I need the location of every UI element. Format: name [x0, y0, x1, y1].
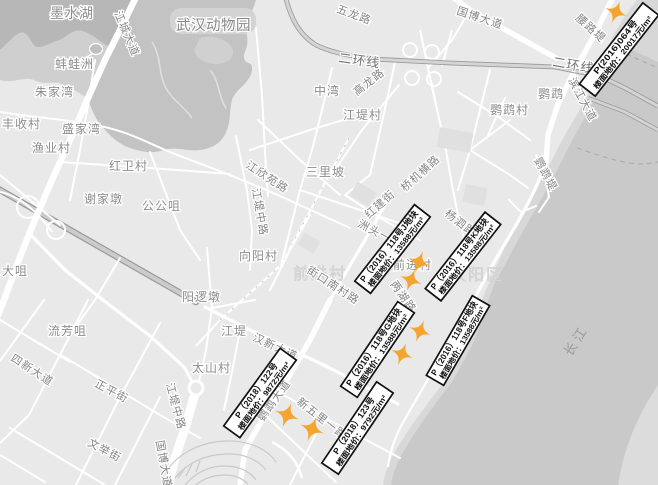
- svg-text:渔业村: 渔业村: [32, 141, 71, 155]
- svg-text:向阳村: 向阳村: [239, 248, 278, 263]
- svg-text:流芳咀: 流芳咀: [48, 324, 87, 338]
- svg-text:大咀: 大咀: [2, 264, 28, 278]
- svg-text:三里坡: 三里坡: [306, 165, 345, 179]
- svg-text:武汉动物园: 武汉动物园: [176, 17, 251, 34]
- svg-text:朱家湾: 朱家湾: [35, 84, 74, 99]
- svg-text:鹦鹉: 鹦鹉: [538, 87, 564, 101]
- svg-text:太山村: 太山村: [192, 360, 231, 375]
- svg-text:盛家湾: 盛家湾: [62, 121, 101, 136]
- svg-text:蚌蛙洲: 蚌蛙洲: [55, 57, 94, 71]
- svg-text:红卫村: 红卫村: [109, 158, 148, 173]
- svg-text:阳逻墩: 阳逻墩: [182, 290, 221, 304]
- svg-text:江堤村: 江堤村: [343, 108, 382, 122]
- svg-text:鹦鹉村: 鹦鹉村: [490, 103, 529, 117]
- svg-text:江堤: 江堤: [221, 324, 247, 338]
- svg-text:公公咀: 公公咀: [142, 199, 181, 213]
- svg-text:墨水湖: 墨水湖: [50, 5, 94, 21]
- svg-text:谢家墩: 谢家墩: [84, 191, 123, 206]
- svg-text:丰收村: 丰收村: [2, 117, 41, 131]
- svg-text:中湾: 中湾: [314, 83, 340, 98]
